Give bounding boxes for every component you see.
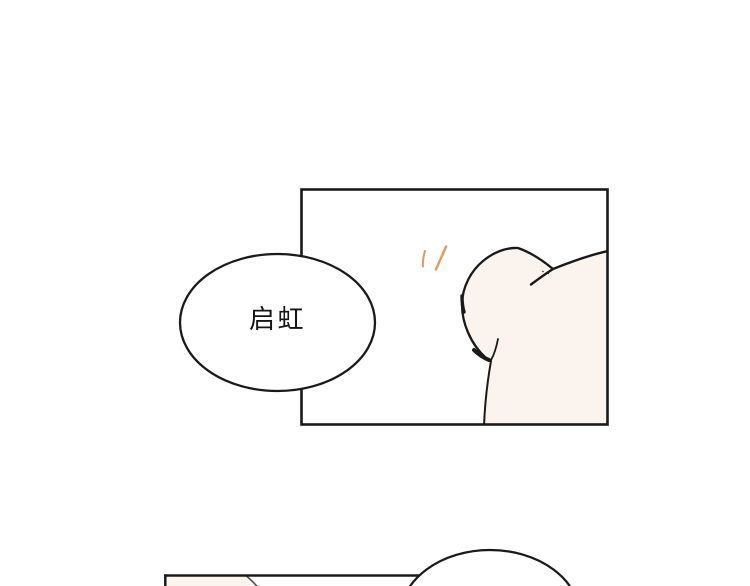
comic-strip-canvas: 启虹	[0, 0, 750, 586]
sketch-speck	[548, 273, 549, 274]
speech-bubble-2-partial	[400, 550, 580, 586]
comic-page: 启虹	[0, 0, 750, 586]
comic-panel-2-partial	[164, 550, 580, 586]
figure-brush-accent-left	[462, 296, 464, 312]
character-figure-2-partial	[167, 577, 257, 586]
sketch-speck	[542, 271, 544, 273]
comic-panel-1: 启虹	[180, 190, 608, 427]
speech-bubble-text: 启虹	[249, 305, 306, 335]
